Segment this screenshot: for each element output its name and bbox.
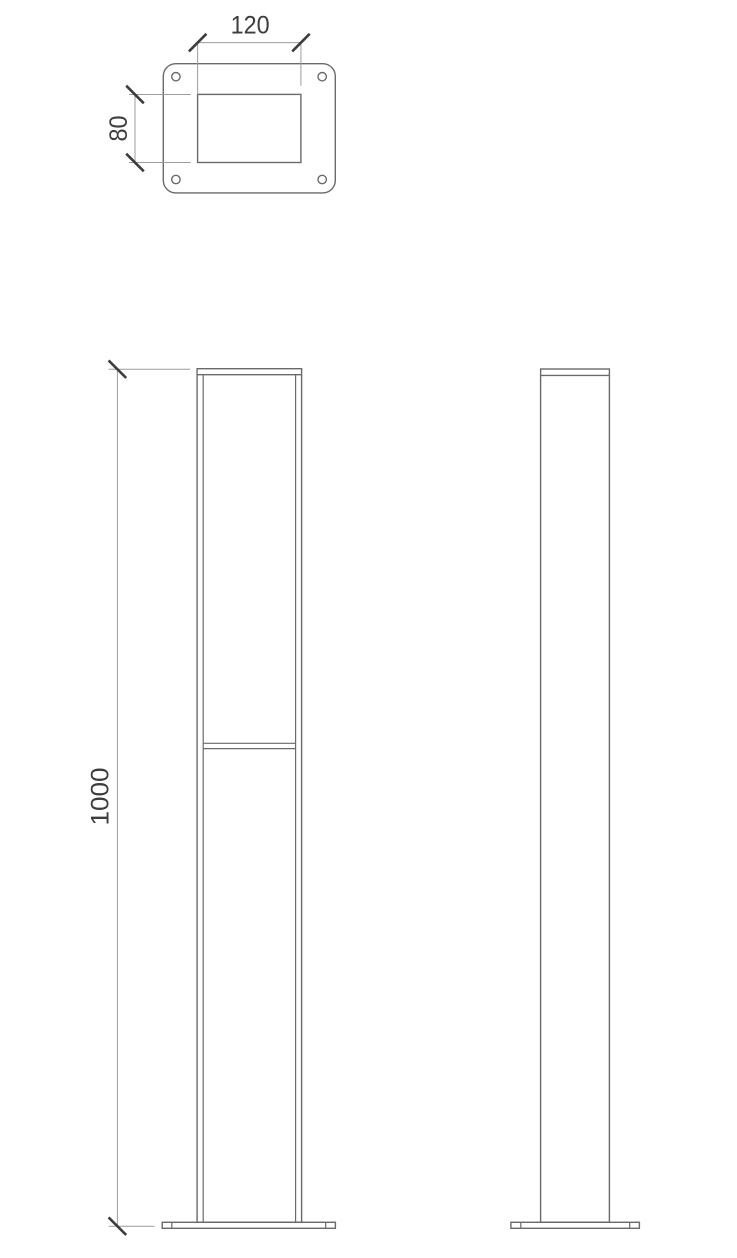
svg-text:1000: 1000 (87, 768, 115, 826)
svg-text:120: 120 (231, 11, 270, 39)
svg-text:80: 80 (105, 116, 133, 142)
